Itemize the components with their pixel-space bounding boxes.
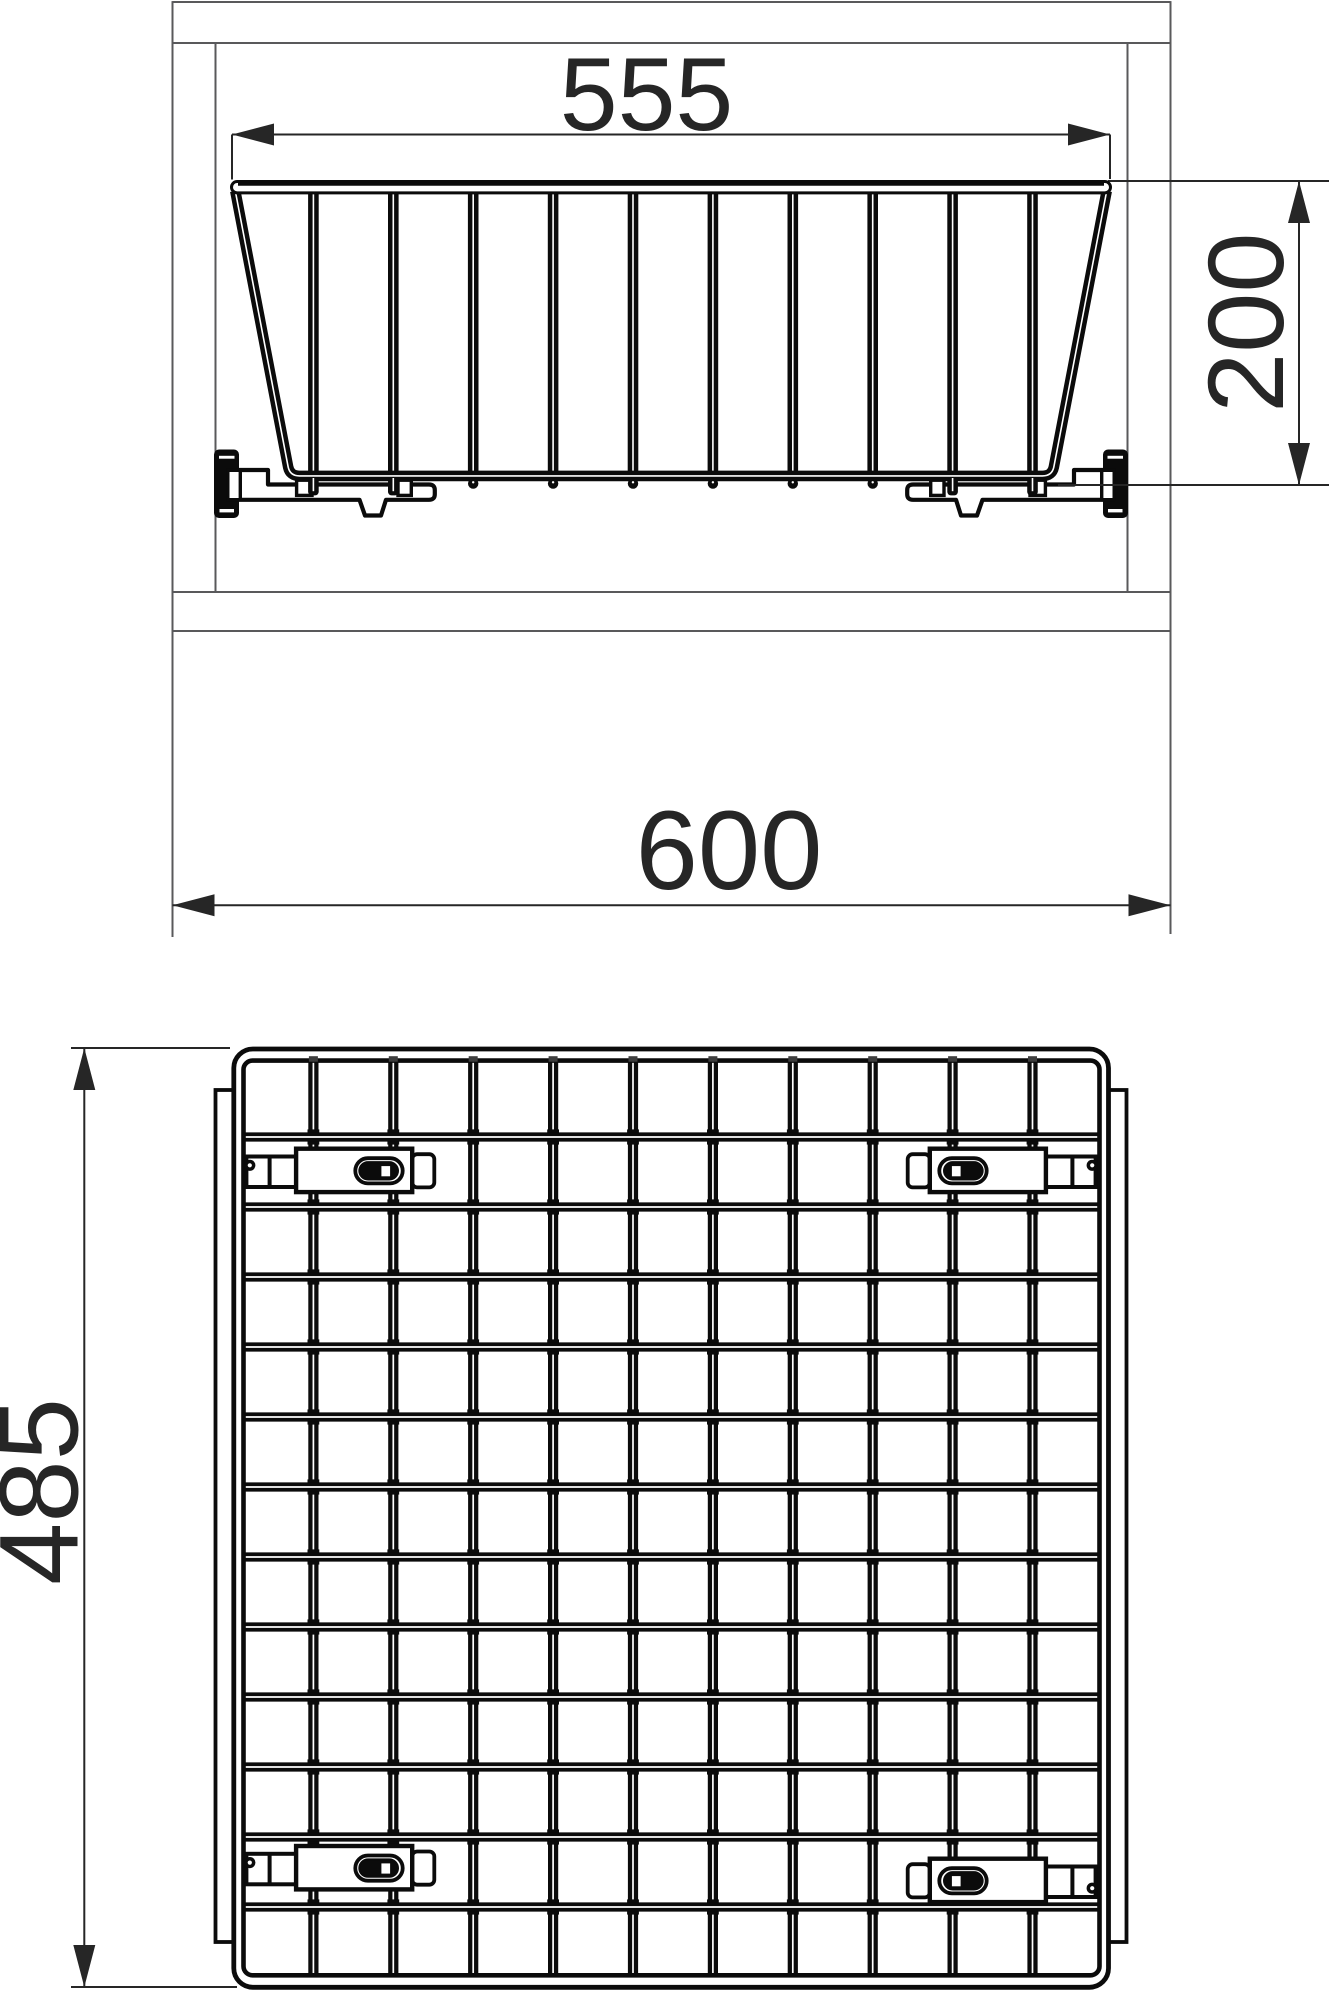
svg-text:485: 485: [0, 1398, 101, 1585]
svg-text:555: 555: [560, 37, 734, 153]
svg-text:200: 200: [1185, 233, 1306, 413]
svg-text:600: 600: [636, 788, 823, 913]
